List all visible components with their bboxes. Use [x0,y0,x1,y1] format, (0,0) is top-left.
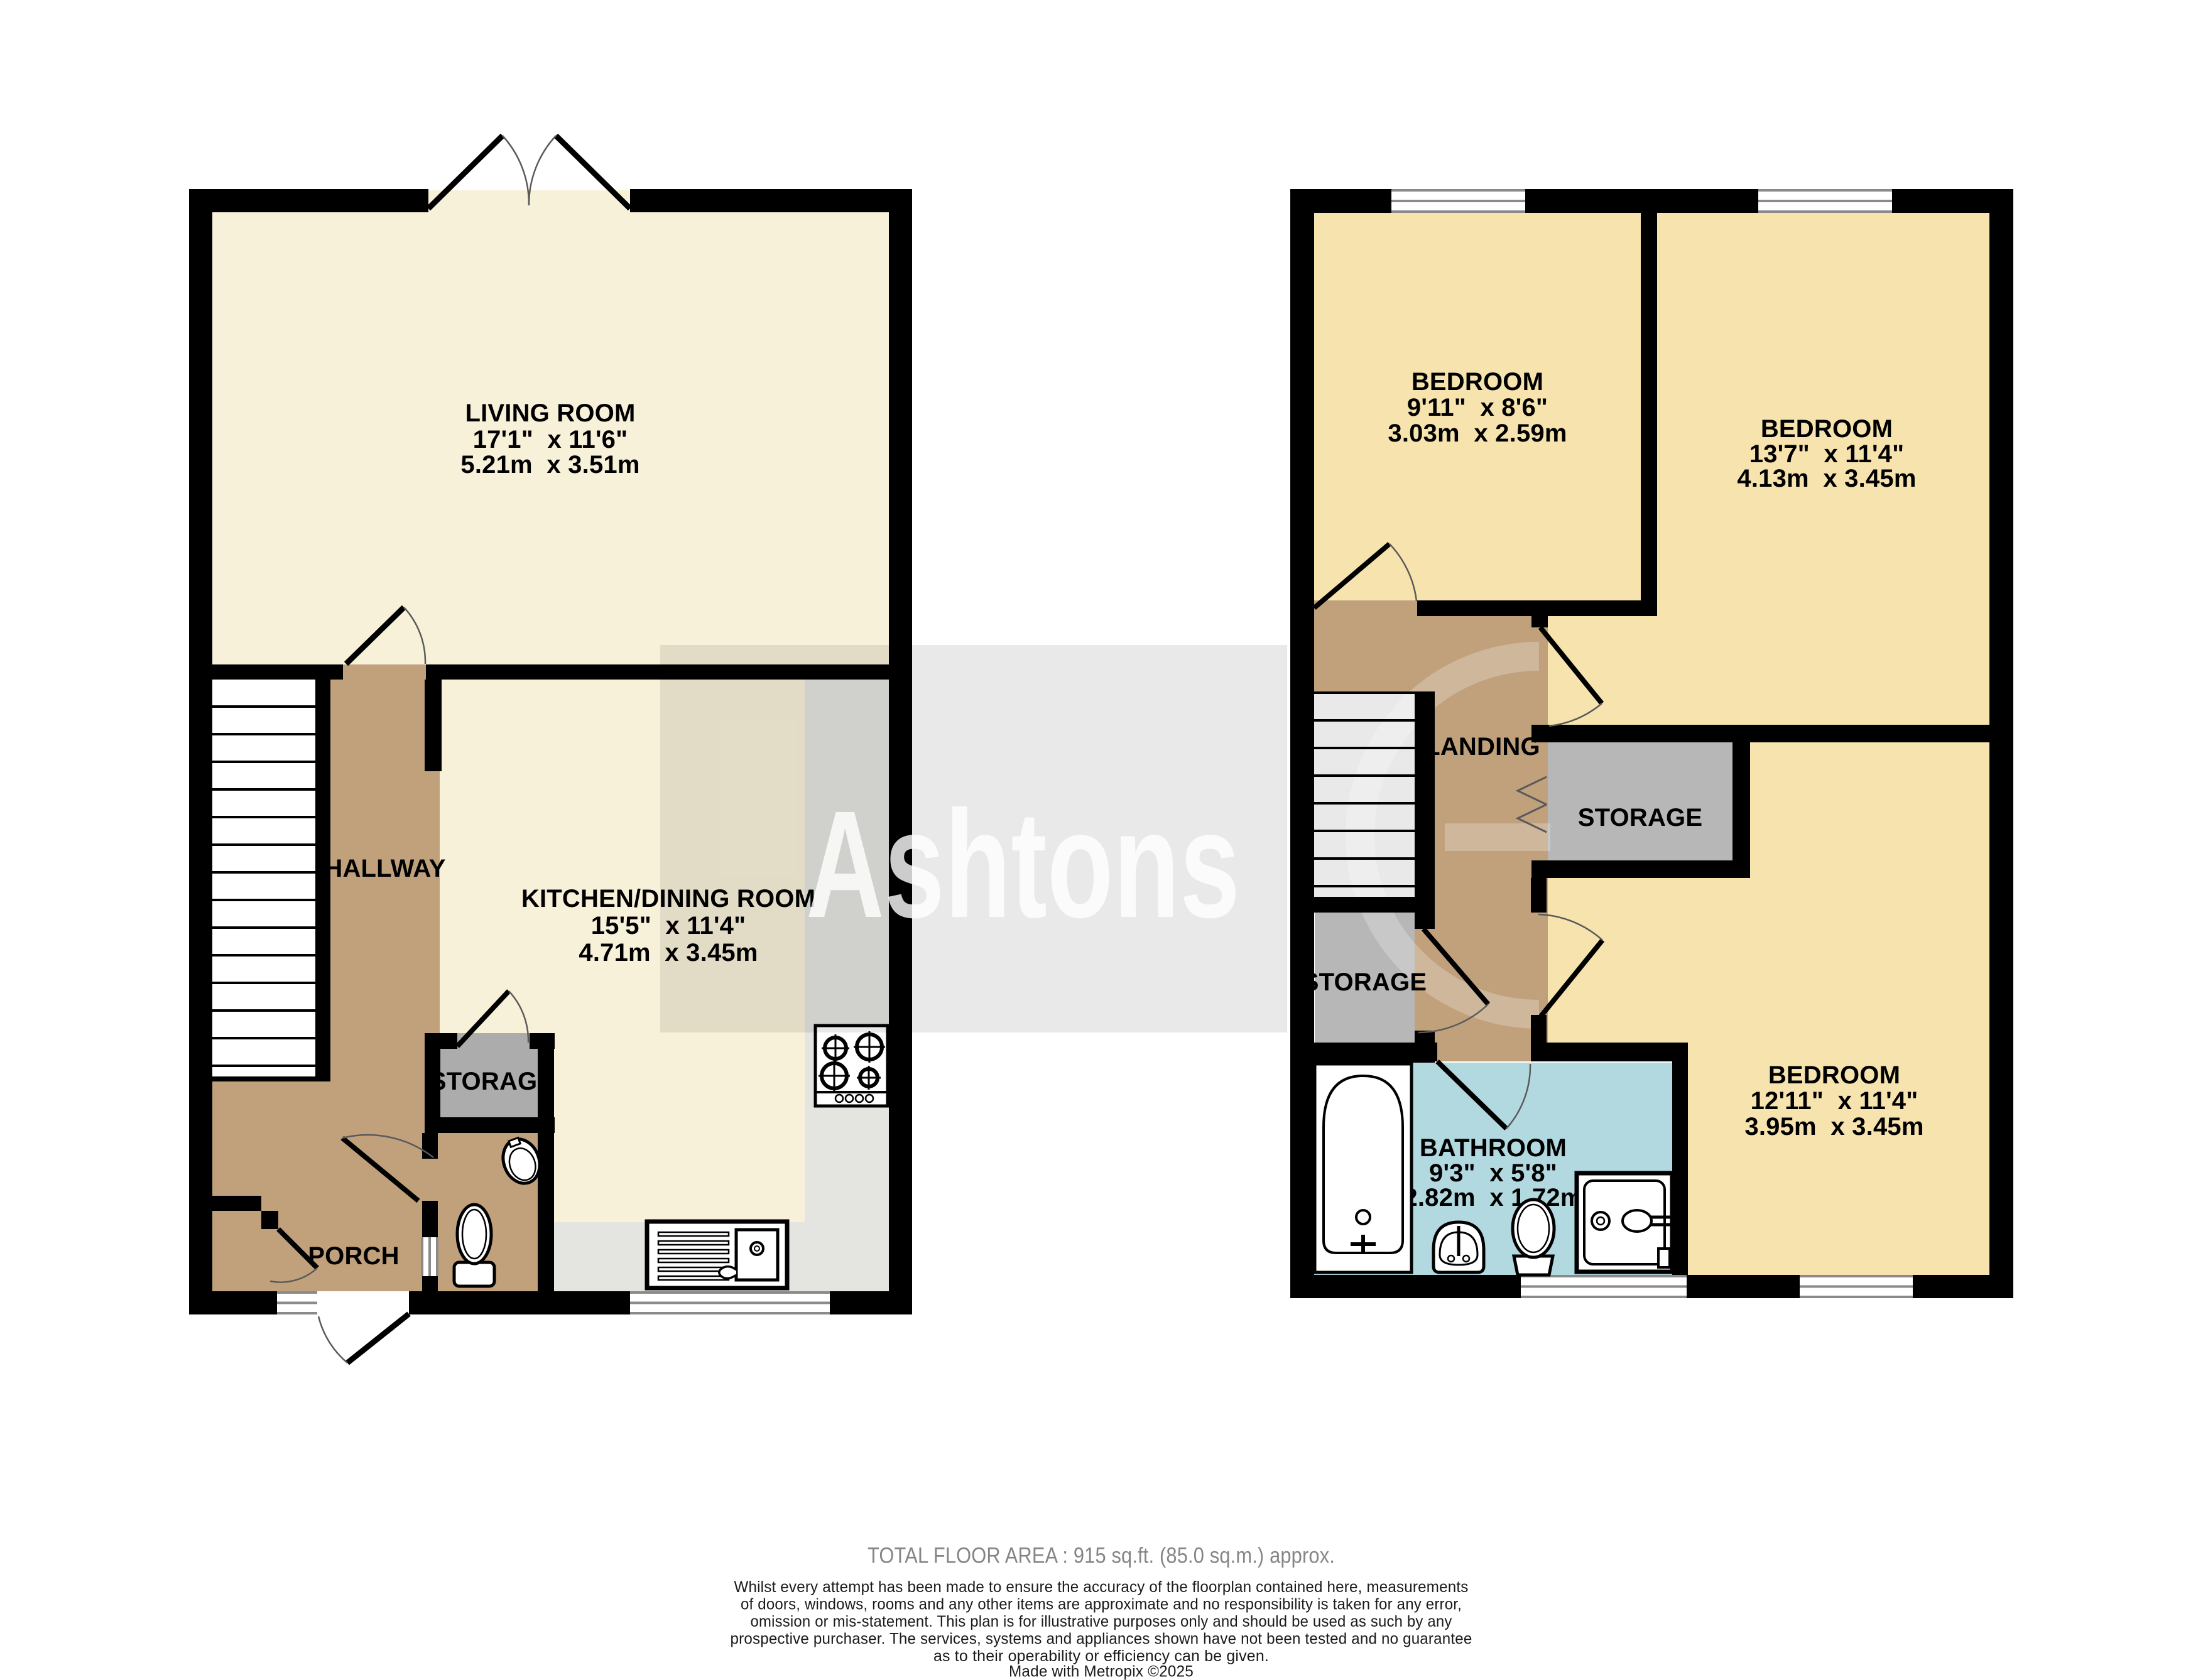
svg-text:HALLWAY: HALLWAY [324,855,445,882]
svg-text:3.95m x 3.45m: 3.95m x 3.45m [1744,1113,1923,1141]
svg-text:17'1" x 11'6": 17'1" x 11'6" [473,426,628,453]
svg-text:Made with Metropix ©2025: Made with Metropix ©2025 [1009,1663,1194,1680]
svg-text:BEDROOM: BEDROOM [1412,368,1543,396]
svg-text:TOTAL FLOOR AREA : 915 sq.ft.: TOTAL FLOOR AREA : 915 sq.ft. (85.0 sq.m… [868,1544,1335,1568]
svg-text:3.03m x 2.59m: 3.03m x 2.59m [1388,420,1567,447]
svg-text:STORAGE: STORAGE [1302,968,1427,996]
svg-text:LIVING ROOM: LIVING ROOM [465,399,635,427]
svg-text:PORCH: PORCH [308,1242,399,1270]
svg-text:omission or mis-statement. Thi: omission or mis-statement. This plan is … [751,1613,1452,1630]
svg-text:13'7" x 11'4": 13'7" x 11'4" [1749,440,1905,468]
svg-text:4.13m x 3.45m: 4.13m x 3.45m [1737,465,1916,492]
svg-text:BEDROOM: BEDROOM [1768,1061,1900,1089]
svg-text:prospective purchaser. The ser: prospective purchaser. The services, sys… [731,1630,1472,1648]
svg-text:2.82m x 1.72m: 2.82m x 1.72m [1403,1184,1582,1211]
svg-text:STORAGE: STORAGE [430,1068,554,1095]
svg-text:LANDING: LANDING [1425,733,1540,761]
svg-text:Whilst every attempt has been: Whilst every attempt has been made to en… [734,1578,1469,1596]
svg-text:12'11" x 11'4": 12'11" x 11'4" [1751,1087,1918,1115]
svg-text:Ashtons: Ashtons [806,779,1240,950]
svg-text:9'3" x 5'8": 9'3" x 5'8" [1429,1159,1557,1187]
svg-text:of doors, windows, rooms and a: of doors, windows, rooms and any other i… [741,1596,1462,1613]
svg-text:BATHROOM: BATHROOM [1420,1134,1567,1162]
svg-text:BEDROOM: BEDROOM [1761,415,1893,443]
svg-text:5.21m x 3.51m: 5.21m x 3.51m [460,451,639,479]
svg-text:9'11" x 8'6": 9'11" x 8'6" [1407,394,1548,421]
svg-text:STORAGE: STORAGE [1578,804,1702,832]
